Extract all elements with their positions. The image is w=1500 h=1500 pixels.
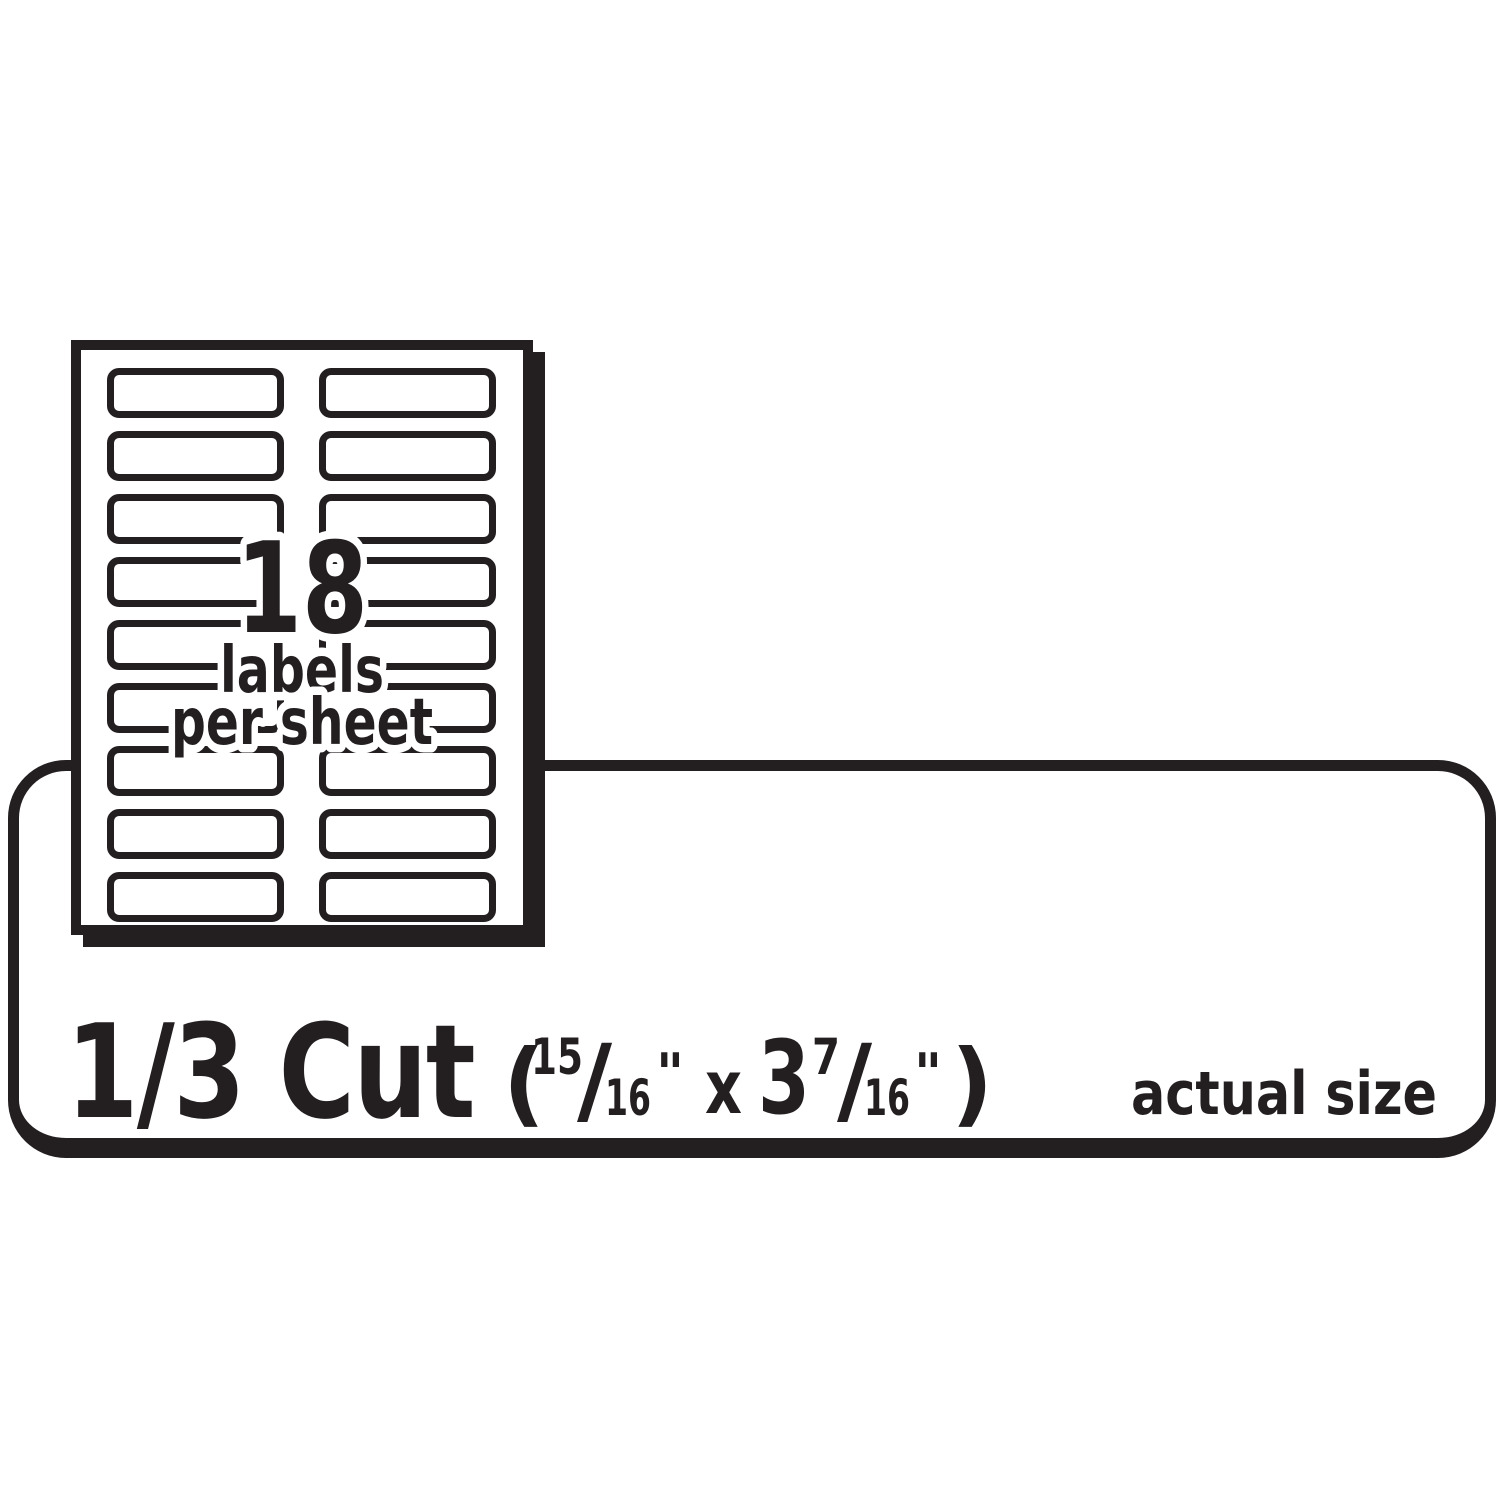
cut-label-text: 1/3 Cut: [66, 996, 474, 1148]
dimension-separator-x: x: [705, 1045, 742, 1131]
length-whole-number: 3: [758, 1019, 810, 1138]
labels-caption-line2: per sheet: [171, 686, 433, 760]
sheet-caption-overlay: 18 labels per sheet: [71, 340, 533, 935]
width-fraction-numerator: 15: [531, 1028, 583, 1086]
width-fraction-denominator: 16: [605, 1069, 651, 1127]
length-fraction-numerator: 7: [812, 1028, 840, 1086]
length-fraction-denominator: 16: [864, 1069, 910, 1127]
width-inch-mark: ": [656, 1042, 684, 1105]
product-illustration: 1/3 Cut ( 15 / 16 " x 3 7 / 16 " ) actua…: [0, 0, 1500, 1500]
length-inch-mark: ": [914, 1042, 942, 1105]
label-sheet: 18 labels per sheet: [71, 340, 533, 935]
actual-size-label: actual size: [1131, 1059, 1437, 1129]
dimension-close-paren: ): [951, 1030, 993, 1137]
